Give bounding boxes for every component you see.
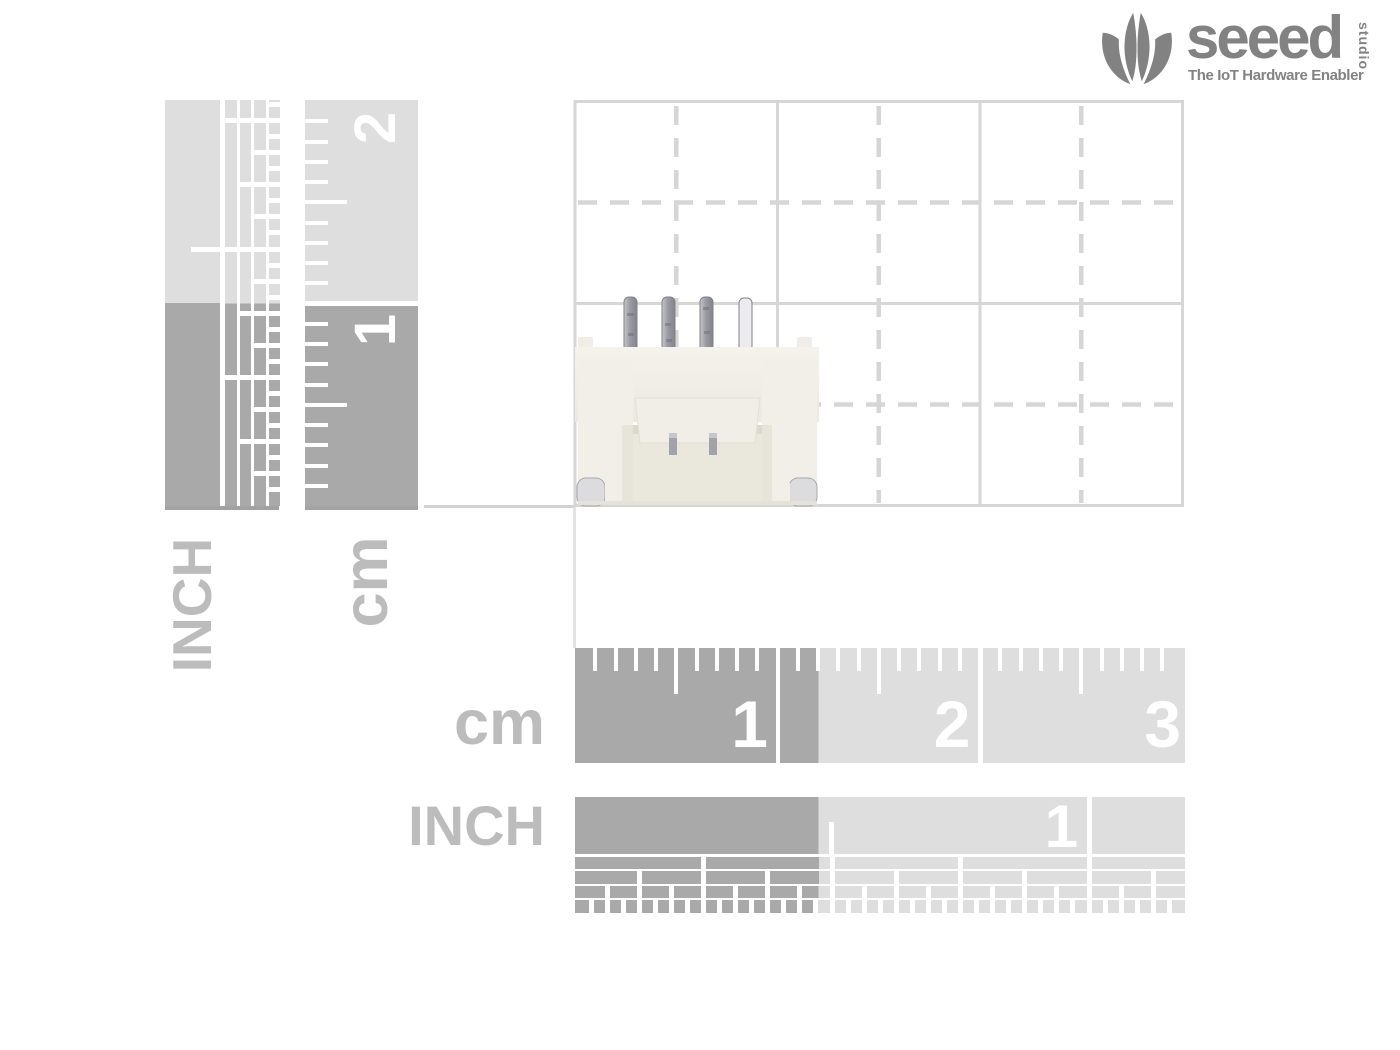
h-inch-segment <box>706 900 717 913</box>
h-inch-segment <box>1124 886 1151 899</box>
v-inch-segment <box>269 396 281 407</box>
h-cm-number: 3 <box>981 688 1181 758</box>
v-inch-segment <box>254 412 266 439</box>
h-cm-tick <box>938 648 942 671</box>
v-inch-segment <box>240 444 252 506</box>
v-cm-tick <box>305 140 328 144</box>
h-inch-segment <box>931 900 942 913</box>
v-inch-segment <box>269 235 281 246</box>
v-cm-tick <box>305 342 328 346</box>
h-cm-tick <box>695 648 699 671</box>
v-inch-segment <box>269 300 281 311</box>
left-inch-ruler-label: INCH <box>112 525 272 685</box>
v-inch-segment <box>254 444 266 471</box>
h-inch-half-tick <box>829 822 834 854</box>
v-cm-tick <box>305 160 328 164</box>
h-inch-segment <box>1043 900 1054 913</box>
h-cm-tick <box>897 648 901 671</box>
v-inch-segment <box>254 100 266 118</box>
v-inch-segment <box>240 100 252 118</box>
v-inch-segment <box>240 187 252 246</box>
brand-tagline: The IoT Hardware Enabler <box>1188 67 1363 84</box>
h-inch-segment <box>1156 886 1185 899</box>
v-cm-tick <box>305 200 347 204</box>
h-inch-segment <box>899 886 926 899</box>
v-inch-segment <box>269 155 281 166</box>
h-inch-segment <box>706 886 733 899</box>
h-cm-tick <box>917 648 921 671</box>
v-inch-segment <box>269 348 281 359</box>
bottom-cm-ruler-label: cm <box>305 688 545 758</box>
h-inch-segment <box>706 871 765 884</box>
v-inch-segment <box>254 476 266 506</box>
left-cm-ruler-label: cm <box>286 502 446 662</box>
v-inch-band <box>165 100 220 506</box>
v-cm-tick <box>305 362 328 366</box>
h-cm-tick <box>1140 648 1144 671</box>
v-cm-tick <box>305 221 328 225</box>
h-inch-segment <box>1124 900 1135 913</box>
v-inch-segment <box>269 332 281 343</box>
v-inch-segment <box>269 252 281 263</box>
h-cm-tick <box>857 648 861 671</box>
h-inch-number: 1 <box>878 799 1078 853</box>
h-inch-segment <box>1092 857 1186 870</box>
h-inch-segment <box>851 900 862 913</box>
h-inch-segment <box>818 900 829 913</box>
h-cm-tick <box>654 648 658 671</box>
h-cm-tick <box>593 648 597 671</box>
bottom-inch-ruler-label: INCH <box>305 797 545 855</box>
h-inch-segment <box>995 900 1006 913</box>
h-inch-segment <box>867 886 894 899</box>
v-inch-segment <box>269 444 281 455</box>
h-inch-segment <box>1059 900 1070 913</box>
h-inch-segment <box>835 857 959 870</box>
h-inch-segment <box>642 900 653 913</box>
v-inch-segment <box>269 284 281 295</box>
v-inch-segment <box>225 380 237 506</box>
h-inch-segment <box>770 900 781 913</box>
v-inch-segment <box>269 100 281 102</box>
v-cm-tick <box>305 322 328 326</box>
connector-body <box>575 337 819 506</box>
h-inch-segment <box>738 886 765 899</box>
v-inch-segment <box>269 139 281 150</box>
h-inch-segment <box>690 900 701 913</box>
connector-product-image <box>570 293 825 513</box>
h-inch-segment <box>1092 886 1119 899</box>
h-inch-segment <box>770 886 797 899</box>
v-inch-segment <box>225 123 237 247</box>
v-inch-segment <box>269 316 281 327</box>
h-cm-tick <box>1120 648 1124 671</box>
v-inch-segment <box>269 412 281 423</box>
h-inch-segment <box>722 900 733 913</box>
h-inch-segment <box>626 900 637 913</box>
h-cm-tick <box>614 648 618 671</box>
v-cm-tick <box>305 464 328 468</box>
h-inch-segment <box>899 871 958 884</box>
h-inch-segment <box>658 900 669 913</box>
h-cm-tick <box>998 648 1002 671</box>
v-inch-segment <box>269 380 281 391</box>
h-cm-tick <box>755 648 759 671</box>
h-cm-tick <box>816 648 820 671</box>
v-inch-segment <box>269 219 281 230</box>
h-inch-segment <box>1011 900 1022 913</box>
h-inch-segment <box>575 871 637 884</box>
v-inch-segment <box>269 203 281 214</box>
v-inch-segment <box>254 187 266 214</box>
v-cm-number: 2 <box>335 88 415 168</box>
h-inch-segment <box>706 857 830 870</box>
product-photo-page: 211231 <box>0 0 1400 1050</box>
v-cm-tick <box>305 241 328 245</box>
v-inch-segment <box>225 100 237 118</box>
h-cm-tick <box>836 648 840 671</box>
h-inch-segment <box>642 871 701 884</box>
h-cm-tick <box>1100 648 1104 671</box>
brand-name: seeed <box>1186 8 1356 64</box>
v-inch-segment <box>240 123 252 182</box>
h-cm-number: 1 <box>568 688 768 758</box>
h-inch-segment <box>1140 900 1151 913</box>
h-inch-segment <box>995 886 1022 899</box>
h-inch-segment <box>1059 886 1086 899</box>
baseline-line-vertical <box>573 507 576 648</box>
v-inch-ruler-edge <box>165 506 279 510</box>
v-inch-segment <box>254 284 266 311</box>
h-inch-segment <box>674 900 685 913</box>
h-inch-segment <box>899 900 910 913</box>
v-inch-segment <box>254 123 266 150</box>
h-inch-segment <box>786 900 797 913</box>
v-inch-segment <box>240 380 252 439</box>
baseline-line-horizontal <box>424 505 575 508</box>
v-inch-segment <box>269 428 281 439</box>
h-inch-segment <box>738 900 749 913</box>
seeed-lotus-icon <box>1098 8 1176 88</box>
v-inch-segment <box>254 316 266 343</box>
h-inch-segment <box>802 886 829 899</box>
v-inch-segment <box>254 252 266 279</box>
h-inch-segment <box>770 871 829 884</box>
v-inch-segment <box>269 268 281 279</box>
h-inch-segment <box>594 900 605 913</box>
v-inch-half-tick <box>191 247 220 252</box>
v-inch-segment <box>269 171 281 182</box>
v-cm-tick <box>305 423 328 427</box>
h-inch-segment <box>979 900 990 913</box>
h-inch-segment <box>575 886 605 899</box>
h-cm-number: 2 <box>771 688 971 758</box>
h-inch-segment <box>1092 871 1151 884</box>
h-inch-segment <box>754 900 765 913</box>
h-cm-tick <box>634 648 638 671</box>
v-cm-tick <box>305 281 328 285</box>
v-cm-tick <box>305 119 328 123</box>
h-inch-segment <box>1156 900 1167 913</box>
v-inch-segment <box>254 380 266 407</box>
h-inch-segment <box>642 886 669 899</box>
h-cm-tick <box>958 648 962 671</box>
h-cm-tick <box>735 648 739 671</box>
h-inch-segment <box>963 871 1022 884</box>
h-inch-separator <box>1087 797 1092 854</box>
h-inch-segment <box>883 900 894 913</box>
v-inch-segment <box>269 364 281 375</box>
v-cm-tick <box>305 484 328 488</box>
h-inch-segment <box>1027 886 1054 899</box>
h-inch-segment <box>1075 900 1086 913</box>
h-inch-segment <box>802 900 813 913</box>
seeed-logo: seeed studio The IoT Hardware Enabler <box>1096 6 1386 90</box>
v-inch-segment <box>269 107 281 118</box>
v-inch-segment <box>254 348 266 375</box>
v-cm-tick <box>305 443 328 447</box>
h-inch-segment <box>1027 900 1038 913</box>
h-inch-segment <box>963 886 990 899</box>
v-inch-segment <box>269 492 281 506</box>
v-cm-tick <box>305 261 328 265</box>
h-inch-segment <box>867 900 878 913</box>
h-inch-segment <box>674 886 701 899</box>
h-inch-segment <box>963 900 974 913</box>
h-cm-tick <box>1160 648 1164 671</box>
h-inch-segment <box>610 886 637 899</box>
h-inch-segment <box>575 857 701 870</box>
v-cm-tick <box>305 403 347 407</box>
h-inch-segment <box>1108 900 1119 913</box>
h-inch-segment <box>610 900 621 913</box>
h-inch-segment <box>1027 871 1086 884</box>
v-inch-segment <box>240 252 252 311</box>
v-inch-segment <box>254 155 266 182</box>
h-inch-segment <box>915 900 926 913</box>
h-inch-segment <box>575 900 589 913</box>
v-inch-segment <box>269 460 281 471</box>
v-inch-segment <box>269 476 281 487</box>
h-inch-segment <box>1172 900 1185 913</box>
h-cm-tick <box>796 648 800 671</box>
v-inch-segment <box>240 316 252 375</box>
connector-pins <box>624 297 752 351</box>
h-inch-segment <box>931 886 958 899</box>
h-inch-segment <box>947 900 958 913</box>
v-inch-segment <box>269 123 281 134</box>
h-inch-segment <box>1092 900 1103 913</box>
v-inch-segment <box>254 219 266 246</box>
h-inch-segment <box>835 900 846 913</box>
v-inch-segment <box>225 252 237 376</box>
h-inch-segment <box>835 886 862 899</box>
h-cm-tick <box>1019 648 1023 671</box>
v-cm-tick <box>305 383 328 387</box>
h-cm-tick <box>1059 648 1063 671</box>
h-inch-segment <box>835 871 894 884</box>
v-cm-tick <box>305 180 328 184</box>
v-inch-segment <box>269 187 281 198</box>
h-inch-segment <box>1156 871 1185 884</box>
h-cm-tick <box>1039 648 1043 671</box>
h-cm-tick <box>715 648 719 671</box>
v-cm-number: 1 <box>335 290 415 370</box>
